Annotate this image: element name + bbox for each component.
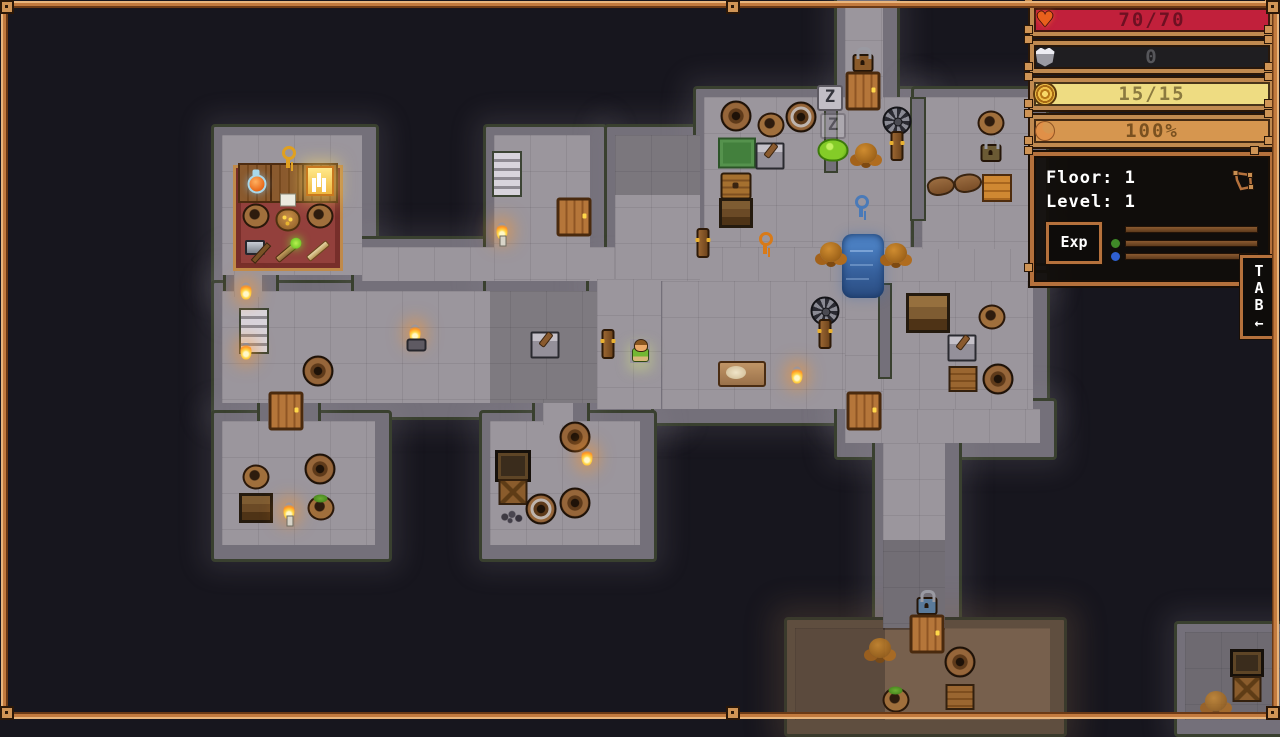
map-object-flame — [241, 343, 252, 360]
map-wall-segment — [910, 97, 926, 221]
map-object-door[interactable] — [847, 392, 882, 431]
map-object-key — [758, 232, 772, 254]
map-object-padlock — [853, 54, 874, 72]
map-object-slime — [818, 139, 849, 162]
map-object-door[interactable] — [557, 198, 592, 237]
map-object-shelfdark — [495, 450, 531, 482]
map-object-bench — [718, 361, 766, 387]
map-object-barrel — [305, 454, 336, 485]
map-object-candle — [284, 503, 295, 520]
map-floor-mid-corridor — [615, 135, 700, 281]
heart-icon: ♥ — [1033, 8, 1057, 32]
map-object-player — [630, 339, 650, 363]
gold-coil-icon — [1033, 82, 1057, 106]
exp-dot-blue — [1110, 251, 1121, 262]
map-object-tag — [280, 194, 296, 207]
map-object-post — [697, 228, 710, 258]
map-object-door[interactable] — [910, 615, 945, 654]
map-floor-passage-s — [543, 399, 573, 425]
exp-bars — [1110, 222, 1258, 264]
map-object-chest[interactable] — [721, 173, 752, 200]
map-object-tree — [869, 638, 891, 658]
map-object-tree — [855, 143, 877, 163]
exp-label: Exp — [1046, 222, 1102, 264]
satiation-value: 100% — [1034, 119, 1270, 143]
armor-icon — [1033, 45, 1057, 69]
map-object-crateorange[interactable] — [982, 174, 1012, 202]
satiation-bar: 100% — [1030, 115, 1274, 147]
map-object-zzz: Z — [820, 113, 846, 139]
map-object-shelf[interactable] — [239, 493, 273, 523]
map-object-bigshelf[interactable] — [906, 293, 950, 333]
map-object-pot — [243, 204, 270, 229]
armor-value: 0 — [1034, 45, 1270, 69]
floor-label: Floor: 1 — [1046, 166, 1258, 190]
health-value: 70/70 — [1034, 8, 1270, 32]
resource-bar: 15/15 — [1030, 78, 1274, 110]
health-bar: ♥ 70/70 — [1030, 4, 1274, 36]
map-object-barrel — [721, 101, 752, 132]
map-object-flame — [792, 367, 803, 384]
map-object-flame — [582, 449, 593, 466]
map-object-tree — [1205, 691, 1227, 711]
armor-bar: 0 — [1030, 41, 1274, 73]
map-object-candle — [497, 223, 508, 240]
exp-row: Exp — [1046, 222, 1258, 264]
exp-dot-green — [1110, 238, 1121, 249]
map-object-sack — [276, 209, 301, 232]
map-object-crate[interactable] — [949, 366, 978, 392]
map-object-crate[interactable] — [946, 684, 975, 710]
map-wall-segment — [878, 283, 892, 379]
map-object-cratex[interactable] — [499, 479, 528, 505]
map-object-potion — [248, 175, 267, 194]
map-object-stairs — [492, 151, 522, 197]
map-object-water — [842, 234, 884, 298]
map-object-mortar — [948, 335, 977, 362]
map-object-padlock — [981, 144, 1002, 162]
map-object-pot — [307, 204, 334, 229]
map-object-door[interactable] — [846, 72, 881, 111]
map-object-post — [891, 131, 904, 161]
tab-letters: T A B — [1243, 263, 1275, 314]
map-object-barrel — [945, 647, 976, 678]
map-object-post — [819, 319, 832, 349]
exp-bar-2 — [1125, 240, 1258, 247]
map-object-tree — [820, 242, 842, 262]
map-object-tome — [306, 166, 334, 196]
map-icon[interactable] — [1230, 168, 1256, 198]
exp-bar-1 — [1125, 226, 1258, 233]
map-object-zzz: Z — [817, 85, 843, 111]
map-object-potgreens — [883, 688, 910, 713]
info-panel: Floor: 1 Level: 1 Exp — [1030, 152, 1274, 286]
map-object-barrel — [303, 356, 334, 387]
map-object-pot — [758, 113, 785, 138]
map-object-cratex[interactable] — [1233, 676, 1262, 702]
map-object-shelf[interactable] — [719, 198, 753, 228]
map-object-tree — [885, 243, 907, 263]
map-object-pebbles — [500, 511, 524, 524]
map-object-flame — [241, 283, 252, 300]
resource-value: 15/15 — [1034, 82, 1270, 106]
map-object-axe — [245, 238, 271, 264]
map-object-barrel — [983, 364, 1014, 395]
map-object-pot — [243, 465, 270, 490]
tab-key-hint: T A B ← — [1240, 255, 1278, 339]
map-object-mortar — [531, 332, 560, 359]
map-object-key — [854, 195, 868, 217]
map-object-post — [602, 329, 615, 359]
map-object-pot — [979, 305, 1006, 330]
map-object-torchstand — [410, 325, 421, 342]
map-object-barrelband — [786, 102, 817, 133]
level-label: Level: 1 — [1046, 190, 1258, 214]
map-object-ruggreen — [718, 138, 756, 169]
map-object-mortar — [756, 143, 785, 170]
tab-arrow-icon: ← — [1243, 314, 1275, 332]
map-object-barrelband — [526, 494, 557, 525]
map-object-chestdark[interactable] — [1230, 649, 1264, 677]
crescent-icon — [1033, 119, 1057, 143]
map-object-door[interactable] — [269, 392, 304, 431]
exp-bar-3 — [1125, 253, 1258, 260]
map-object-potgreens — [308, 496, 335, 521]
map-object-pot — [978, 111, 1005, 136]
map-object-padlock — [917, 597, 938, 615]
map-object-barrel — [560, 488, 591, 519]
hud: ♥ 70/70 0 15/15 100% Floor: 1 Level: 1 E… — [1030, 4, 1274, 286]
map-object-key — [281, 146, 295, 168]
